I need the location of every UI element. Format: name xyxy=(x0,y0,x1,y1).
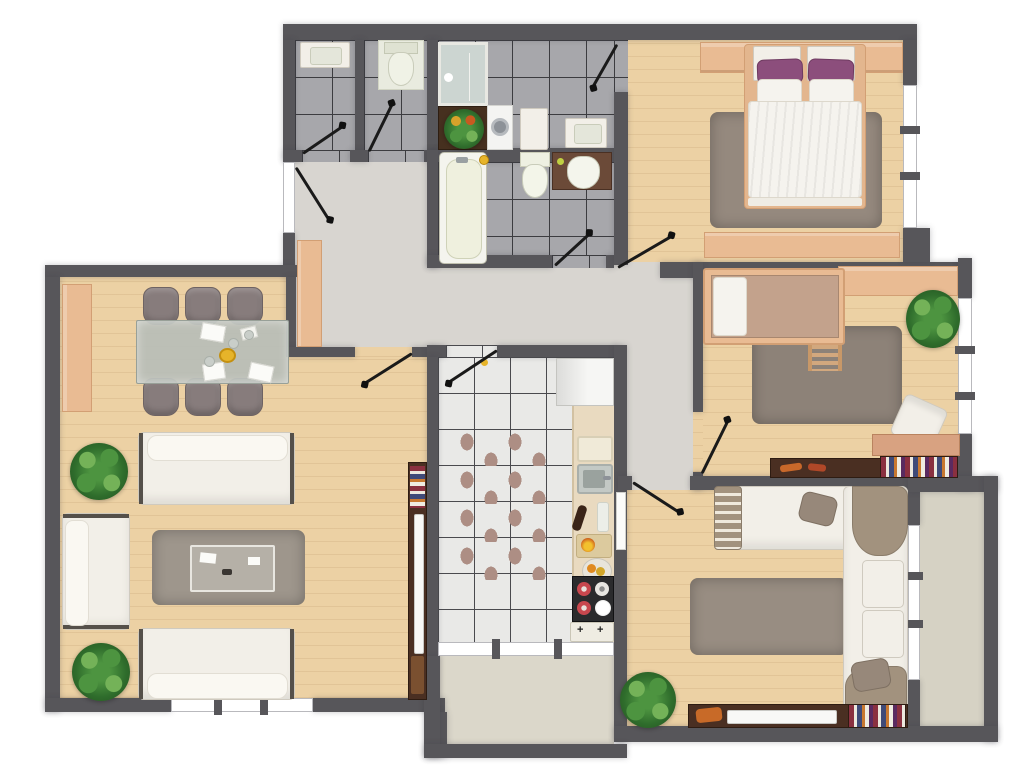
master-door-leaf xyxy=(617,234,674,269)
doors-layer xyxy=(0,0,1024,768)
kids-door-leaf xyxy=(701,418,731,474)
wc-a-door-leaf xyxy=(302,124,345,155)
entry-door-leaf xyxy=(295,167,332,223)
floor-plan-canvas: + + xyxy=(0,0,1024,768)
ensuite-door-leaf xyxy=(591,44,619,90)
living-door-leaf xyxy=(362,352,413,386)
kitchen-door-leaf xyxy=(446,349,498,385)
wc-b-door-leaf xyxy=(368,101,395,152)
family-door-leaf xyxy=(632,481,681,514)
bathroom-door-leaf xyxy=(554,231,592,266)
